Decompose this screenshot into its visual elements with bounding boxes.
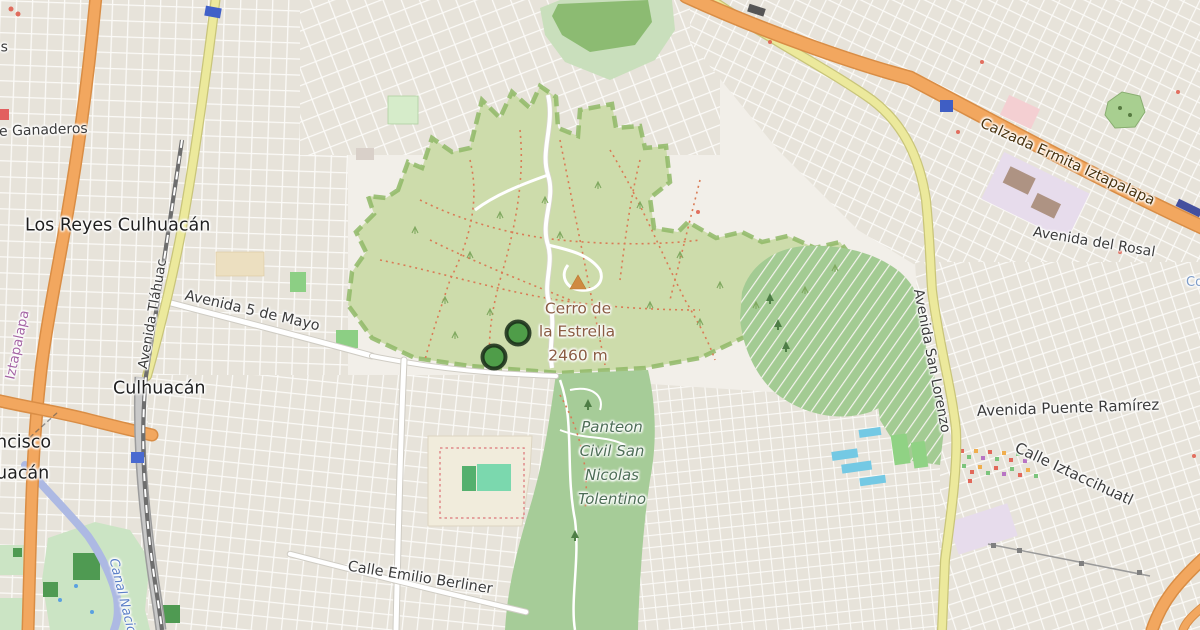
map-svg bbox=[0, 0, 1200, 630]
metro-station-icon bbox=[131, 452, 144, 463]
map-marker-1[interactable] bbox=[507, 322, 530, 345]
map-canvas[interactable]: os e Ganaderos Los Reyes Culhuacán Culhu… bbox=[0, 0, 1200, 630]
map-marker-2[interactable] bbox=[483, 346, 506, 369]
metro-station-icon bbox=[940, 100, 953, 112]
school-block bbox=[428, 436, 532, 526]
